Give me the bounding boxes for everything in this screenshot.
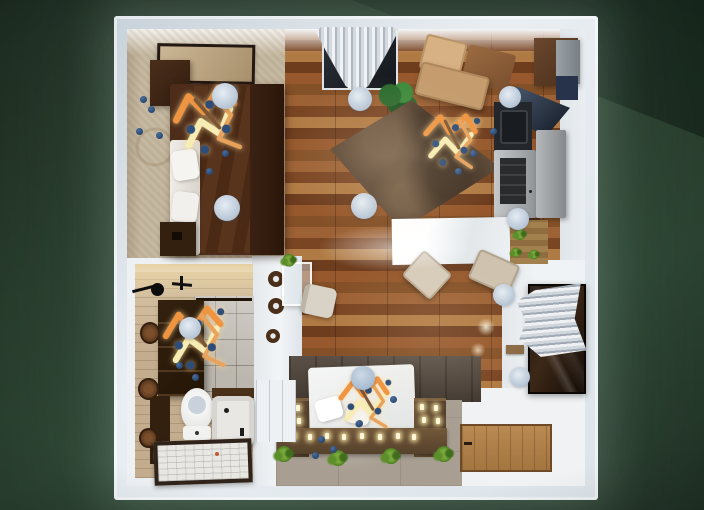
- candle: [422, 417, 426, 423]
- bead: [206, 168, 213, 175]
- candle: [308, 434, 312, 440]
- nightstand-item: [172, 232, 182, 240]
- bead: [318, 436, 325, 443]
- wall-shelf-small: [506, 345, 524, 354]
- planter-fern: [383, 448, 399, 466]
- ceiling-lamp: [212, 83, 238, 109]
- bed-pillow: [170, 191, 199, 224]
- candle: [420, 404, 424, 410]
- bead: [455, 168, 462, 175]
- bed-headboard: [250, 84, 284, 255]
- toilet-flush: [195, 431, 199, 435]
- bead: [222, 150, 229, 157]
- candle: [297, 418, 301, 424]
- console-plant: [283, 254, 296, 268]
- pendant-lamp-lounge: [351, 366, 375, 390]
- candle: [412, 434, 416, 440]
- candle: [296, 405, 300, 411]
- counter-plant: [529, 250, 539, 261]
- candle: [434, 405, 438, 411]
- bead: [176, 362, 183, 369]
- ceiling-lamp: [351, 193, 377, 219]
- zigzag-decor-bedroom: [162, 72, 261, 171]
- kitchen-sink: [500, 110, 528, 144]
- toilet-seat: [188, 396, 206, 414]
- door-handle: [464, 442, 472, 445]
- bathtub-drain: [240, 428, 244, 436]
- bathtub-faucet: [224, 408, 229, 413]
- counter-plant: [511, 248, 521, 259]
- bead: [356, 420, 363, 427]
- towel-hook: [180, 276, 183, 290]
- hood-duct: [556, 76, 578, 100]
- ceiling-lamp: [348, 87, 372, 111]
- bead: [470, 150, 477, 157]
- zigzag-decor-kitchen: [408, 102, 499, 182]
- entry-door-flat: [460, 424, 552, 472]
- bead: [312, 452, 319, 459]
- stove-knob: [529, 190, 532, 193]
- ceiling-lamp: [510, 367, 530, 387]
- ceiling-lamp: [179, 317, 201, 339]
- wall-basket: [138, 378, 159, 400]
- decor-plate: [266, 329, 280, 343]
- ceiling-lamp: [499, 86, 521, 108]
- ceiling-lamp: [214, 195, 240, 221]
- bead: [192, 374, 199, 381]
- candle: [436, 418, 440, 424]
- floor-mat-frame: [153, 438, 252, 485]
- stove-grate: [500, 158, 526, 204]
- hall-chair: [299, 283, 338, 319]
- bead: [330, 446, 337, 453]
- planter-fern: [276, 446, 292, 464]
- counter-plant: [514, 229, 525, 242]
- zigzag-decor-bathroom: [155, 289, 243, 390]
- hall-cabinet: [256, 380, 296, 442]
- floor-mat-dot: [215, 452, 219, 456]
- bead: [136, 128, 143, 135]
- bead: [148, 106, 155, 113]
- bead: [156, 132, 163, 139]
- bead: [390, 396, 397, 403]
- refrigerator: [536, 130, 566, 218]
- bead: [490, 128, 497, 135]
- ceiling-lamp: [507, 208, 529, 230]
- floorplan-render: [0, 0, 704, 510]
- ceiling-lamp: [493, 284, 515, 306]
- planter-fern: [436, 446, 452, 464]
- bead: [140, 96, 147, 103]
